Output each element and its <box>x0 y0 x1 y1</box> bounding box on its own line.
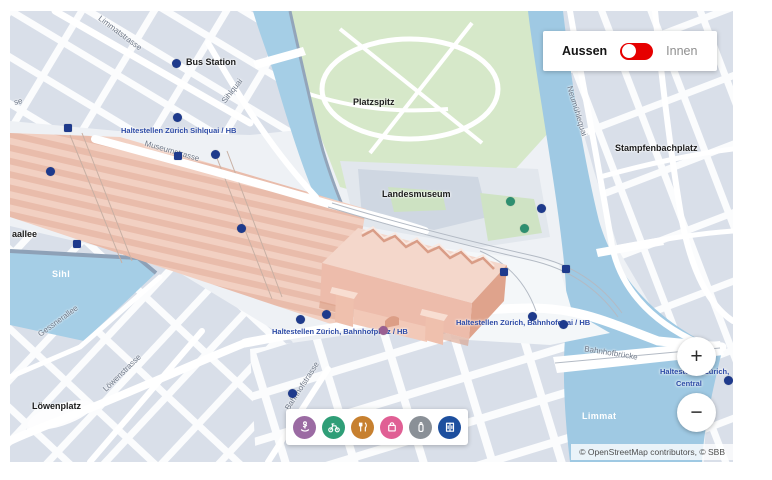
filter-shopping-bag-icon[interactable] <box>380 416 403 439</box>
label-stampfenbachplatz: Stampfenbachplatz <box>615 143 698 153</box>
map-marker-entrance[interactable] <box>174 152 182 160</box>
zoom-in-button[interactable]: + <box>677 337 716 376</box>
map-marker-stop[interactable] <box>211 150 220 159</box>
map-canvas[interactable] <box>10 11 733 462</box>
label-sihl: Sihl <box>52 269 70 279</box>
map-attribution[interactable]: © OpenStreetMap contributors, © SBB <box>571 444 733 460</box>
label-loewenplatz: Löwenplatz <box>32 401 81 411</box>
label-landesmuseum: Landesmuseum <box>382 189 451 199</box>
label-stop-central-line2: Central <box>676 379 702 388</box>
map-marker-stop[interactable] <box>322 310 331 319</box>
map-marker-stop[interactable] <box>46 167 55 176</box>
map-marker-entrance[interactable] <box>500 268 508 276</box>
label-strasse-fragment: se <box>13 96 23 107</box>
map-marker-poi-green[interactable] <box>520 224 529 233</box>
filter-services-icon[interactable] <box>293 416 316 439</box>
map-marker-stop[interactable] <box>559 320 568 329</box>
map-marker-entrance[interactable] <box>562 265 570 273</box>
label-limmat: Limmat <box>582 411 616 421</box>
label-bus-station: Bus Station <box>186 57 236 67</box>
map-marker-stop[interactable] <box>288 389 297 398</box>
map-marker-poi-purple[interactable] <box>379 326 388 335</box>
page: { "toggle": { "left_label": "Aussen", "r… <box>0 0 772 480</box>
label-stop-bahnhofquai-hb: Haltestellen Zürich, Bahnhofquai / HB <box>456 318 590 327</box>
toggle-knob <box>622 44 636 58</box>
zoom-out-button[interactable]: − <box>677 393 716 432</box>
toggle-option-aussen[interactable]: Aussen <box>562 44 607 58</box>
filter-restaurant-icon[interactable] <box>351 416 374 439</box>
label-platzspitz: Platzspitz <box>353 97 395 107</box>
map-marker-stop[interactable] <box>296 315 305 324</box>
filter-bike-icon[interactable] <box>322 416 345 439</box>
map-marker-stop[interactable] <box>172 59 181 68</box>
map-marker-stop[interactable] <box>237 224 246 233</box>
filter-luggage-icon[interactable] <box>409 416 432 439</box>
label-allee-fragment: aallee <box>12 229 37 239</box>
filter-elevator-icon[interactable] <box>438 416 461 439</box>
map-marker-stop[interactable] <box>724 376 733 385</box>
category-filter-bar <box>286 409 468 445</box>
map-marker-stop[interactable] <box>173 113 182 122</box>
map-marker-stop[interactable] <box>537 204 546 213</box>
map-marker-poi-green[interactable] <box>506 197 515 206</box>
map-marker-entrance[interactable] <box>73 240 81 248</box>
view-toggle-card: Aussen Innen <box>543 31 717 71</box>
label-stop-sihlquai-hb: Haltestellen Zürich Sihlquai / HB <box>121 126 236 135</box>
toggle-option-innen[interactable]: Innen <box>666 44 697 58</box>
map-marker-entrance[interactable] <box>64 124 72 132</box>
map-viewport[interactable]: Bus Station Platzspitz Landesmuseum Stam… <box>10 11 733 462</box>
map-marker-stop[interactable] <box>528 312 537 321</box>
aussen-innen-toggle[interactable] <box>620 43 653 60</box>
